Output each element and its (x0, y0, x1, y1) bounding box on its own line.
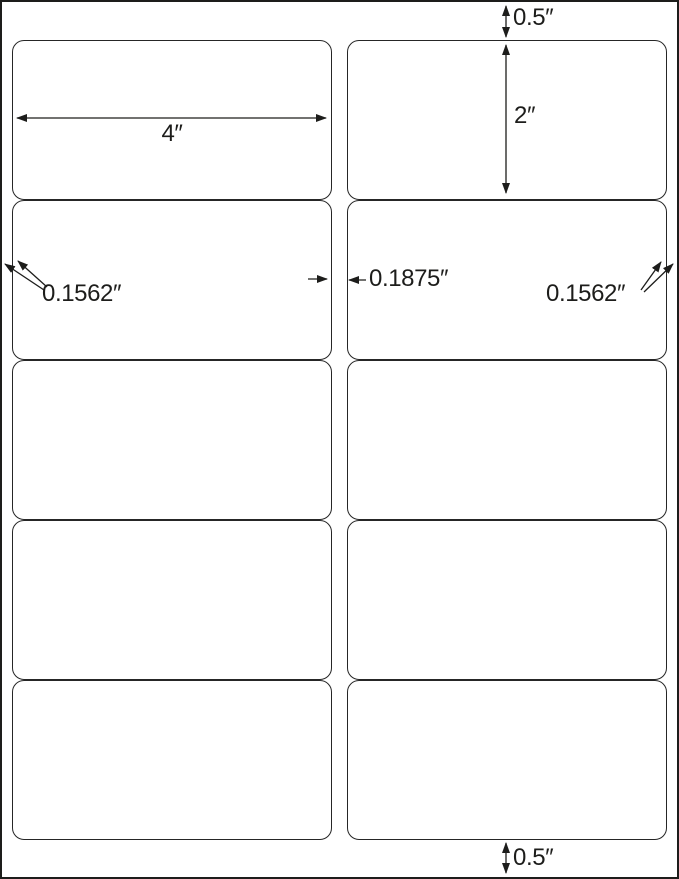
top-margin-value: 0.5″ (513, 5, 553, 31)
label-cell (12, 520, 332, 680)
label-cell (12, 360, 332, 520)
label-cell (347, 200, 667, 360)
label-template-sheet: 0.5″ 4″ 2″ 0.1562″ 0.1875″ 0.1562″ 0.5″ (0, 0, 679, 879)
bottom-margin-value: 0.5″ (513, 845, 553, 871)
label-cell (347, 360, 667, 520)
label-cell (12, 200, 332, 360)
label-cell (347, 40, 667, 200)
label-cell (347, 680, 667, 840)
label-cell (12, 680, 332, 840)
labels-grid (12, 40, 667, 840)
label-cell (12, 40, 332, 200)
label-cell (347, 520, 667, 680)
